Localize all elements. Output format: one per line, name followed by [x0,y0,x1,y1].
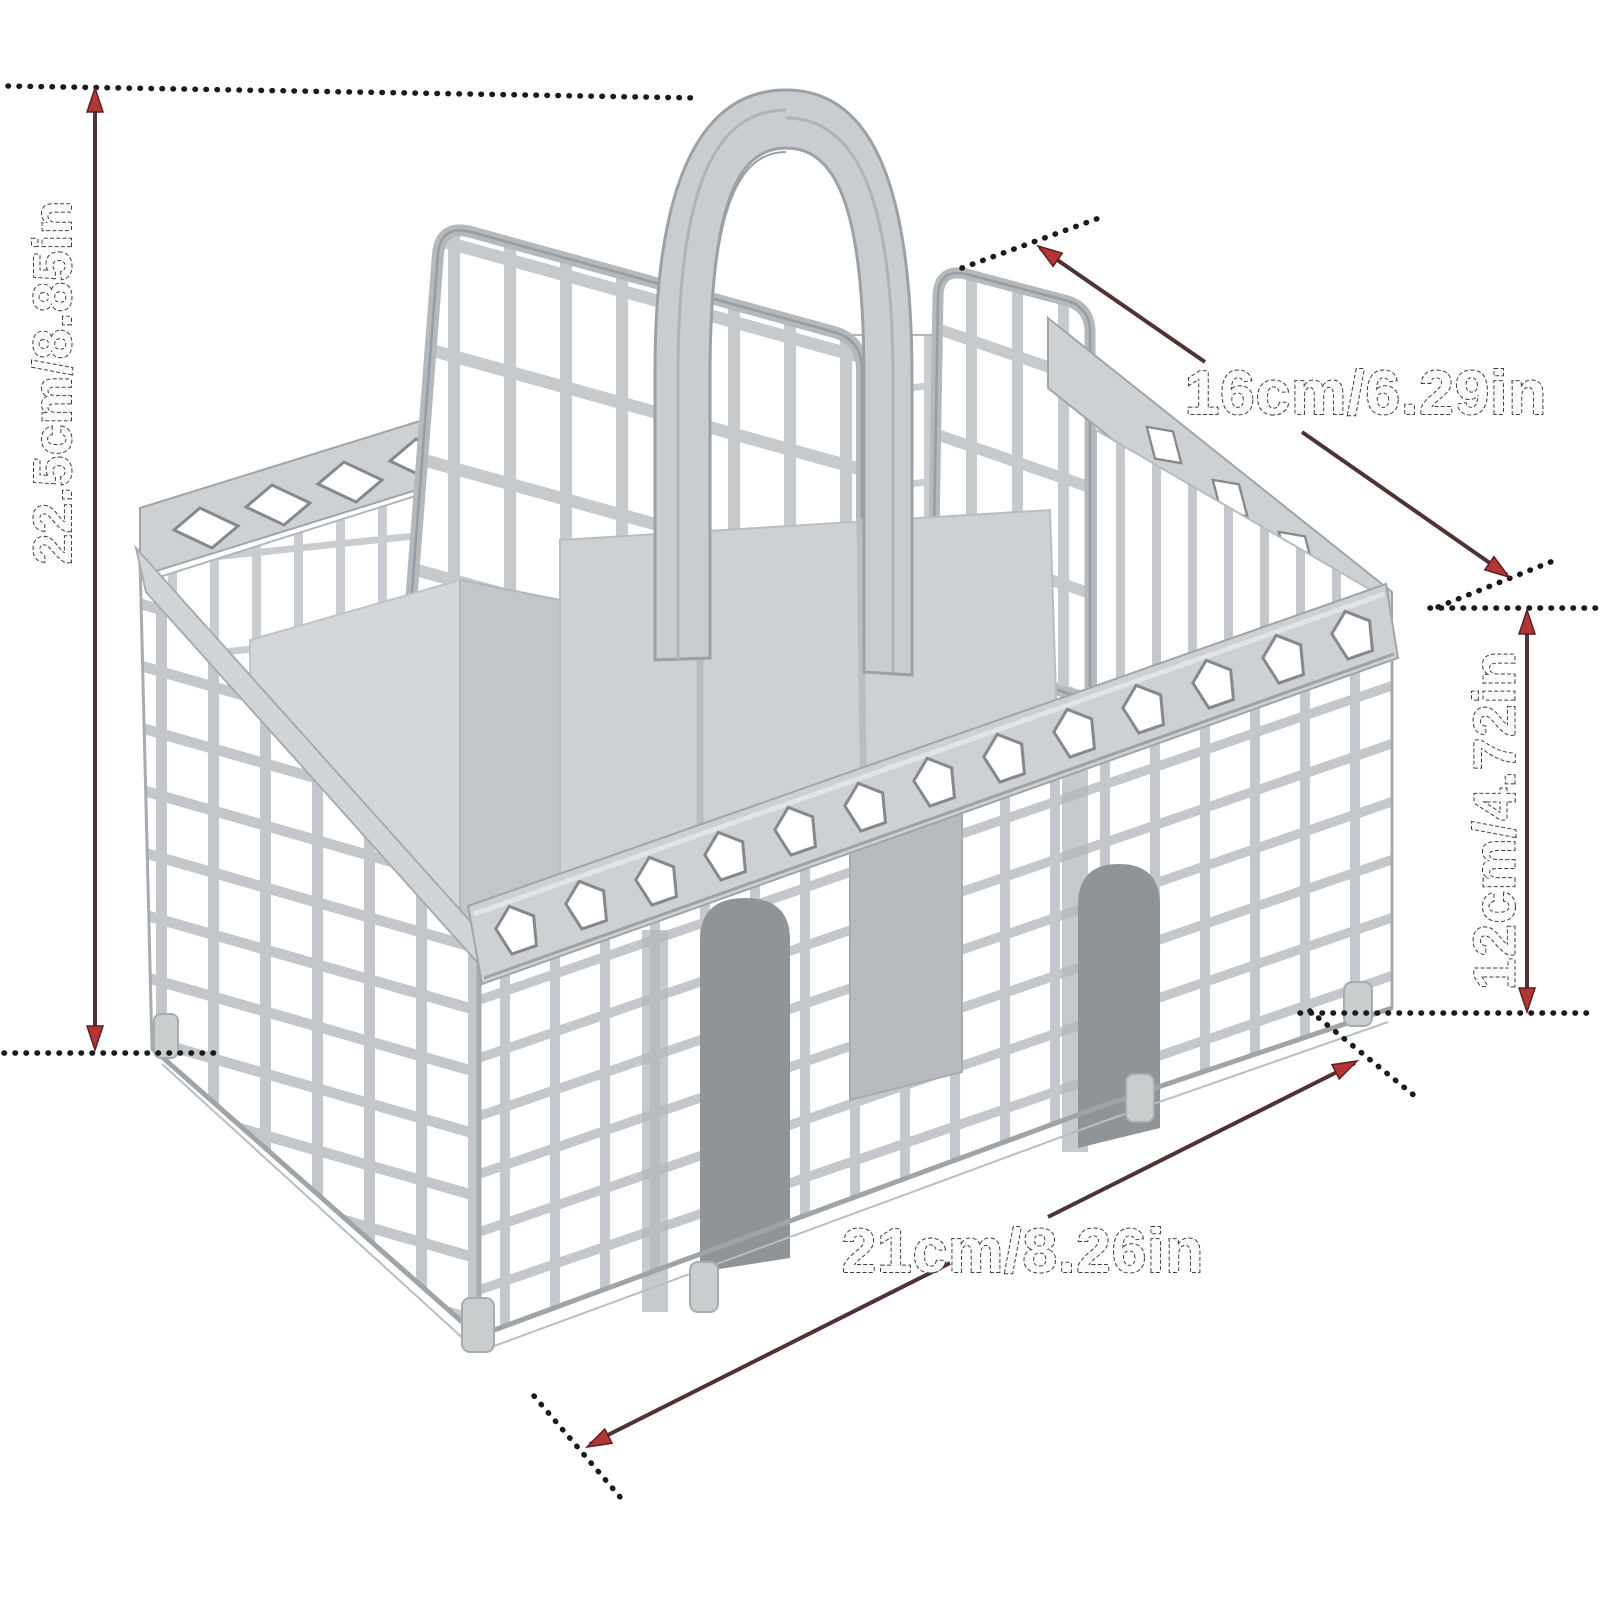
height-dimension-label: 22.5cm/8.85in [23,200,83,564]
width-dimension-label: 21cm/8.26in [842,1217,1205,1286]
product-dimension-diagram: 22.5cm/8.85in 16cm/6.29in 12cm/4.72in [0,0,1600,1600]
basket-height-dimension-label: 12cm/4.72in [1462,650,1527,990]
depth-dimension-label: 16cm/6.29in [1185,359,1548,428]
diagram-canvas: 22.5cm/8.85in 16cm/6.29in 12cm/4.72in [0,0,1600,1600]
front-arch-opening-left [700,898,790,1272]
